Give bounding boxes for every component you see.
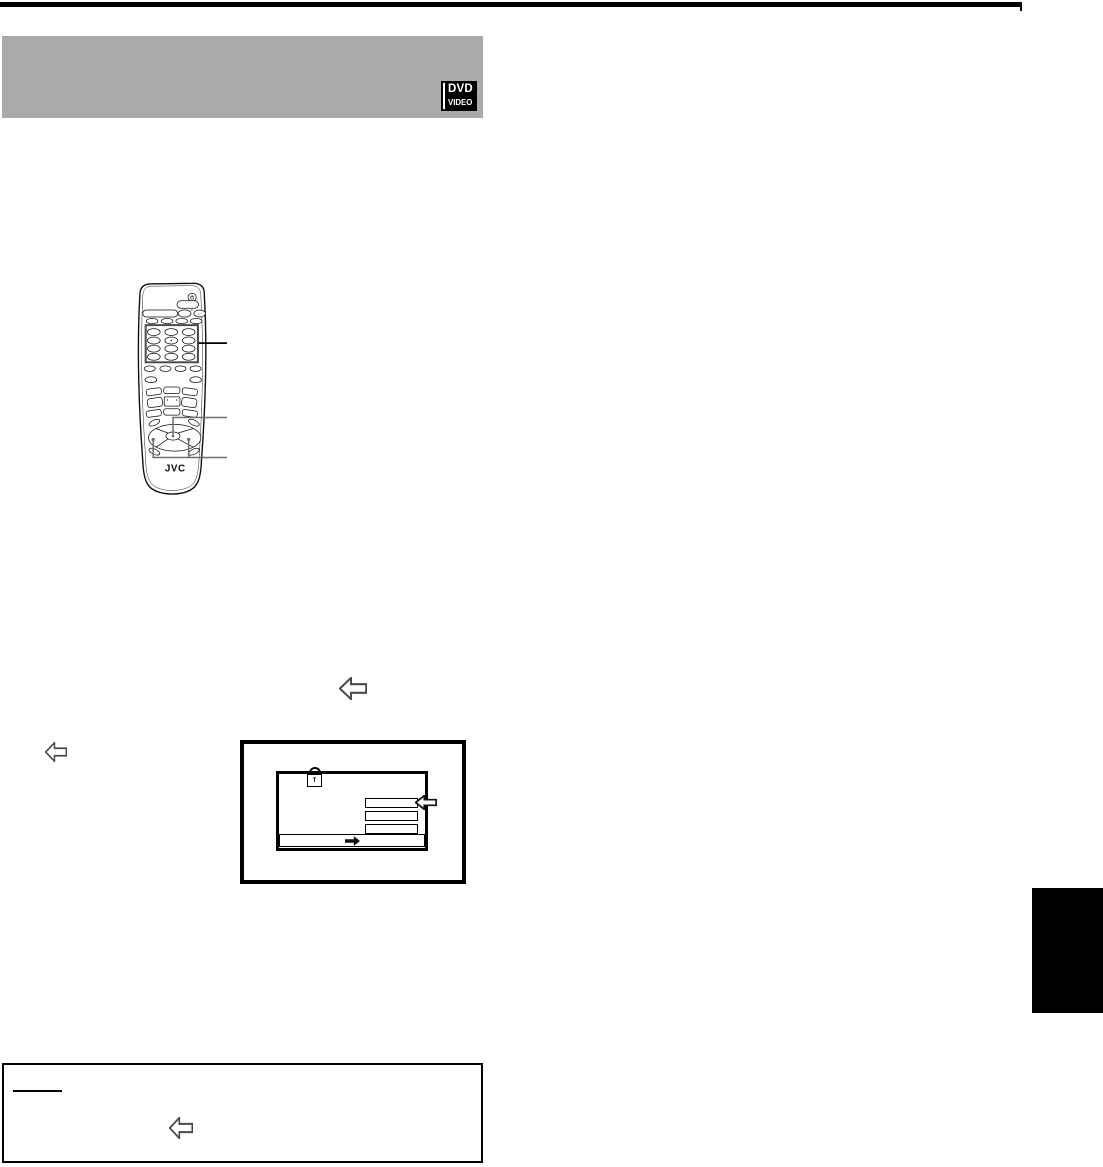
top-rule-end-tick xyxy=(1020,2,1022,11)
small-button xyxy=(160,366,171,372)
small-button xyxy=(175,366,186,372)
dvd-badge-line1: DVD xyxy=(448,84,474,96)
small-button xyxy=(190,377,202,383)
next-arrow-icon xyxy=(345,836,360,846)
back-arrow-icon xyxy=(169,1117,193,1139)
notes-heading-underline xyxy=(13,1090,62,1092)
osd-value-field-1 xyxy=(365,798,418,808)
transport-row-2 xyxy=(147,397,197,408)
selection-arrow-icon xyxy=(415,795,437,810)
power-button-icon xyxy=(188,293,196,301)
mode-button-1 xyxy=(178,310,191,317)
section-header-band xyxy=(2,36,483,118)
small-button xyxy=(176,318,188,323)
dots-label: ··· xyxy=(198,311,202,316)
osd-bottom-bar xyxy=(279,834,425,847)
small-button xyxy=(190,366,201,372)
manual-page: DVD VIDEO xyxy=(0,0,1103,1167)
back-arrow-icon xyxy=(45,742,67,762)
osd-value-field-2 xyxy=(365,811,418,821)
lock-icon-body: T xyxy=(307,774,322,787)
dvd-badge-stripe xyxy=(443,83,445,109)
small-button xyxy=(144,366,155,372)
top-rule xyxy=(0,2,1022,7)
mode-slide-button xyxy=(143,310,178,317)
brand-logo: JVC xyxy=(165,463,186,474)
dvd-badge-text: DVD VIDEO xyxy=(448,84,474,106)
top-wide-button xyxy=(177,301,198,309)
notes-box xyxy=(2,1063,483,1163)
back-arrow-icon xyxy=(339,677,367,700)
osd-value-field-3 xyxy=(365,824,418,834)
small-button xyxy=(190,318,202,323)
small-button xyxy=(146,318,158,323)
chapter-side-tab xyxy=(1032,888,1103,1013)
dvd-video-badge: DVD VIDEO xyxy=(441,81,477,111)
small-button xyxy=(145,377,157,383)
dvd-badge-line2: VIDEO xyxy=(448,98,472,107)
small-button xyxy=(161,318,173,323)
remote-control-illustration: d1 ··· JVC xyxy=(130,275,310,665)
